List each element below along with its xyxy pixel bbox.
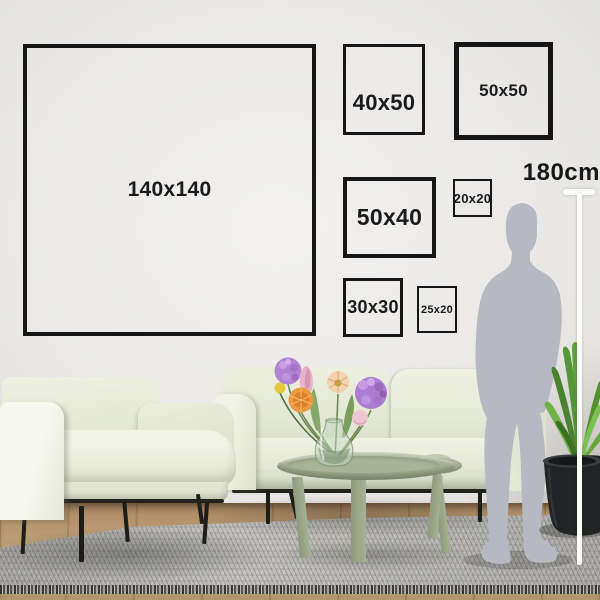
frame-50x50: 50x50 — [454, 42, 553, 140]
frame-140x140: 140x140 — [23, 44, 316, 336]
frame-25x20: 25x20 — [417, 286, 457, 333]
sofa-leg — [478, 492, 482, 522]
sofa-leg — [266, 490, 270, 524]
frame-50x40: 50x40 — [343, 177, 436, 258]
frame-30x30: 30x30 — [343, 278, 403, 337]
armchair-arm-left — [0, 402, 64, 520]
ruler-line — [577, 193, 582, 565]
frame-label-50x50: 50x50 — [479, 81, 528, 101]
frame-label-50x40: 50x40 — [357, 204, 422, 231]
frame-40x50: 40x50 — [343, 44, 425, 135]
coffee-table-surface — [287, 456, 439, 473]
frame-label-30x30: 30x30 — [347, 297, 399, 318]
frame-label-140x140: 140x140 — [128, 178, 212, 202]
height-label: 180cm — [512, 159, 600, 187]
coffee-table-rim — [420, 454, 452, 467]
frame-label-40x50: 40x50 — [353, 90, 416, 116]
rug-fringe — [0, 585, 600, 594]
coffee-table-leg — [351, 478, 366, 562]
armchair-leg — [79, 506, 84, 562]
frame-20x20: 20x20 — [453, 179, 492, 217]
sofa-arm-right — [494, 399, 546, 491]
wall-frame-size-guide: 140x140 40x50 50x50 50x40 20x20 30x30 25… — [0, 0, 600, 600]
frame-label-25x20: 25x20 — [421, 304, 453, 316]
frame-label-20x20: 20x20 — [454, 191, 492, 206]
